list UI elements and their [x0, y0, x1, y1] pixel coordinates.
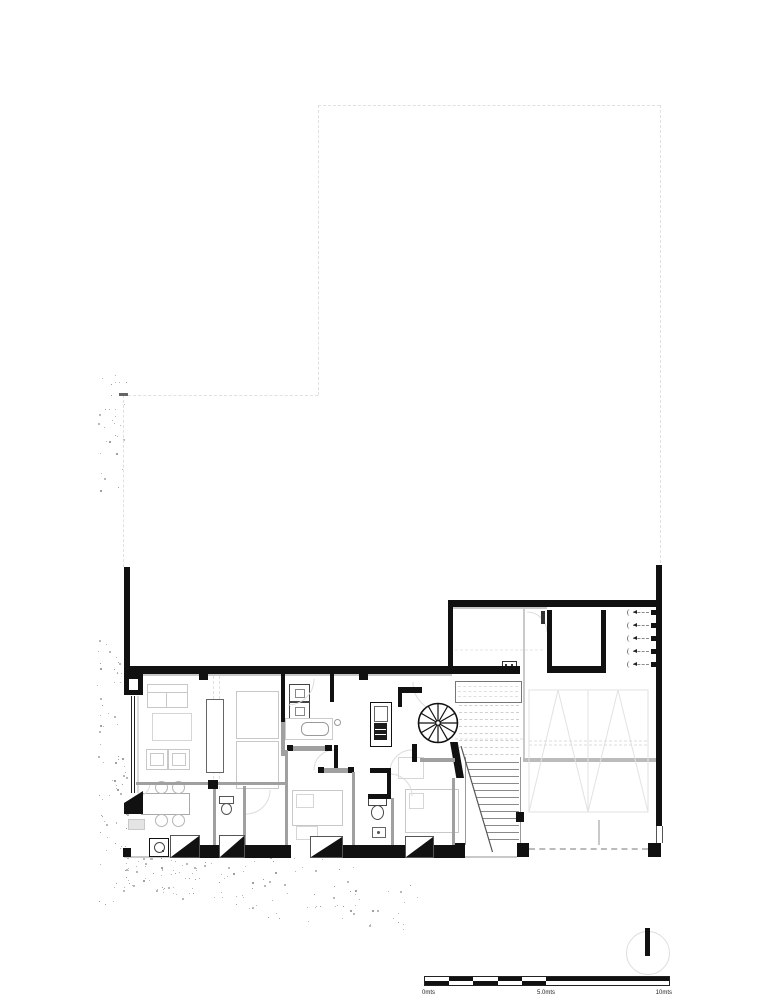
- wall-south-2: [243, 845, 291, 858]
- floor-drain: [334, 719, 341, 726]
- wall-south-1: [198, 845, 219, 858]
- kitchen-sink: [301, 722, 329, 736]
- dining-chair: [172, 814, 185, 827]
- armchair: [168, 749, 190, 770]
- utility-meter: [627, 661, 656, 668]
- property-boundary-left-lower: [123, 395, 124, 567]
- door-frame-tick: [359, 673, 368, 680]
- stair-newel-block: [516, 812, 524, 822]
- wall-inner-face-line: [136, 674, 452, 676]
- vent-box: [128, 819, 145, 830]
- garage-corridor-divider: [523, 607, 525, 758]
- property-boundary-step: [123, 395, 318, 396]
- garage-column-right: [648, 843, 661, 857]
- toilet-bowl: [371, 805, 384, 820]
- wall-cap: [318, 767, 324, 773]
- rug: [152, 713, 192, 741]
- wall-cap: [325, 745, 332, 751]
- wall-annex-top: [448, 600, 662, 607]
- property-boundary-top: [318, 105, 660, 106]
- partition-kitchen-left: [281, 674, 285, 722]
- utility-meter: [627, 622, 656, 629]
- partition-living-south-a: [136, 782, 210, 785]
- wall-storage-bottom: [547, 666, 606, 673]
- door-threshold: [219, 835, 245, 858]
- daybed: [236, 691, 279, 739]
- wall-south-3: [340, 845, 406, 858]
- scale-label-end: 10mts: [650, 989, 672, 997]
- partition-hall-a: [289, 746, 329, 751]
- wall-south-corner: [455, 843, 465, 858]
- partition-bedroom-left: [285, 750, 288, 845]
- garage-chevrons: [455, 650, 648, 812]
- powder-toilet-bowl: [221, 803, 232, 815]
- partition-block: [208, 780, 218, 789]
- wall-storage-right: [601, 610, 606, 671]
- property-boundary-right: [660, 105, 661, 563]
- scale-bar: [424, 976, 670, 986]
- wall-annex-left: [448, 607, 453, 673]
- storage-door-leaf: [541, 611, 545, 624]
- scale-label-start: 0mts: [422, 989, 446, 997]
- door-threshold: [405, 836, 434, 858]
- partition-spiral-b: [398, 687, 402, 707]
- partition-bath-west: [352, 772, 355, 845]
- garage-slab-edge: [523, 758, 656, 762]
- facade-wedge: [124, 791, 143, 814]
- wall-right: [656, 565, 662, 826]
- wall-storage-left: [547, 610, 552, 671]
- bed: [405, 789, 459, 833]
- wall-main-top: [124, 666, 520, 674]
- side-gate: [656, 826, 663, 843]
- wall-patio-left: [124, 567, 130, 672]
- utility-meter: [627, 635, 656, 642]
- annex-inner-face-line: [453, 607, 547, 609]
- sofa-cushion: [147, 692, 168, 708]
- dining-chair: [155, 814, 168, 827]
- scale-bar-checker: [425, 977, 546, 985]
- utility-meter: [627, 609, 656, 616]
- north-indicator-bar: [645, 928, 650, 956]
- laundry-machine: [149, 838, 169, 857]
- partition-bath-top: [368, 794, 391, 799]
- garage-column-left: [517, 843, 529, 857]
- window-glazing-line: [134, 696, 135, 793]
- floor-plan-sheet: 0mts 5.0mts 10mts: [0, 0, 777, 1000]
- door-threshold: [170, 835, 200, 858]
- sofa-cushion: [166, 692, 188, 708]
- door-frame-tick: [199, 673, 208, 680]
- terrace-edge-stair: [460, 856, 517, 858]
- partition-powder-left: [213, 786, 216, 845]
- shelf-unit: [206, 699, 224, 773]
- armchair: [146, 749, 168, 770]
- boundary-corner-tick: [119, 393, 128, 396]
- bed: [292, 790, 343, 826]
- garage-opening-dash: [529, 848, 648, 850]
- bath-sink: [372, 827, 386, 838]
- kitchen-appliance: [289, 684, 310, 702]
- scale-label-mid: 5.0mts: [531, 989, 561, 997]
- fridge-oven-column: [370, 702, 392, 747]
- dining-table: [141, 793, 190, 815]
- spiral-staircase: [419, 704, 458, 743]
- window-glazing-line: [131, 696, 132, 793]
- facade-column: [124, 674, 143, 695]
- utility-meter: [627, 648, 656, 655]
- window-sill-line: [137, 696, 139, 793]
- partition-living-south-b: [218, 782, 285, 785]
- partition-bedroom-right: [452, 778, 455, 845]
- stair-landing: [455, 681, 522, 703]
- partition-bath-east: [391, 798, 394, 845]
- partition-hall-e: [412, 744, 417, 762]
- landing-edge: [420, 758, 455, 762]
- door-threshold: [310, 836, 343, 858]
- property-boundary-left-upper: [318, 105, 319, 395]
- wall-south-4: [432, 845, 456, 858]
- garage-door-post: [598, 820, 600, 845]
- facade-corner-block: [123, 848, 131, 857]
- partition-kitchen-right: [330, 674, 334, 702]
